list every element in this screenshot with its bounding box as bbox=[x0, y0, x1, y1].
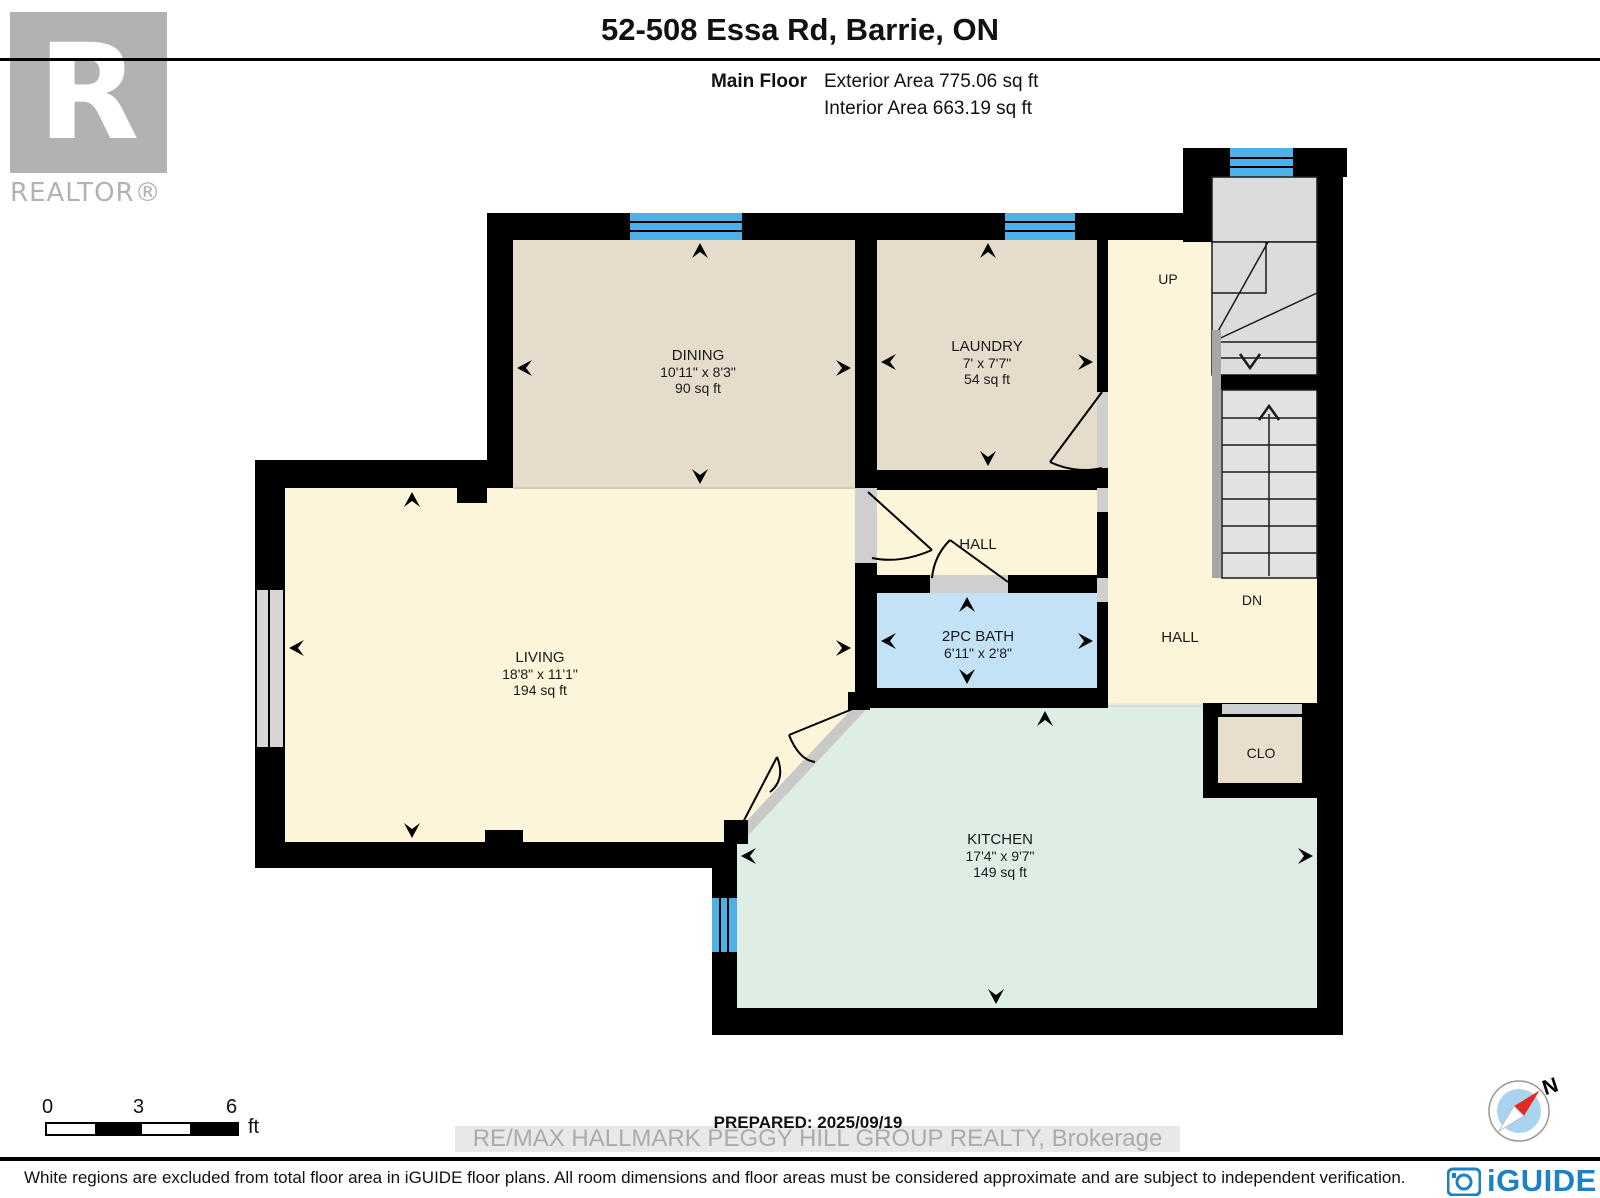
bath-label: 2PC BATH 6'11" x 2'8" bbox=[942, 629, 1014, 661]
living-hall-opening bbox=[855, 488, 877, 563]
living-window bbox=[257, 590, 283, 747]
laundry-window bbox=[1005, 213, 1075, 240]
wall-living-bottom bbox=[255, 842, 723, 868]
wall-stairwell-left bbox=[1183, 148, 1212, 242]
compass-north-label: N bbox=[1540, 1073, 1562, 1100]
closet-label: CLO bbox=[1247, 745, 1276, 761]
wall-laundry-bottom bbox=[855, 470, 1108, 490]
dining-living-boundary bbox=[513, 487, 855, 489]
floor-plan-page: R REALTOR® 52-508 Essa Rd, Barrie, ON Ma… bbox=[0, 0, 1600, 1198]
wall-bath-bottom bbox=[855, 688, 1108, 708]
hall-opening-1 bbox=[1097, 488, 1108, 512]
header-divider bbox=[0, 58, 1600, 61]
realtor-logo-letter: R bbox=[38, 27, 140, 159]
iguide-camera-icon bbox=[1447, 1166, 1481, 1196]
dining-label: DINING 10'11" x 8'3" 90 sq ft bbox=[660, 348, 736, 396]
compass-icon: N bbox=[1489, 1073, 1561, 1141]
scale-tick-6: 6 bbox=[226, 1096, 237, 1119]
kitchen-label: KITCHEN 17'4" x 9'7" 149 sq ft bbox=[966, 832, 1035, 880]
disclaimer-text: White regions are excluded from total fl… bbox=[24, 1168, 1406, 1188]
wall-stub-top bbox=[457, 488, 487, 503]
hall-opening-2 bbox=[1097, 578, 1108, 602]
exterior-area: Exterior Area 775.06 sq ft bbox=[824, 71, 1038, 93]
hall-kitchen-boundary bbox=[1108, 705, 1203, 707]
realtor-logo-text: REALTOR® bbox=[10, 178, 190, 208]
interior-area: Interior Area 663.19 sq ft bbox=[824, 98, 1032, 120]
dining-window bbox=[630, 213, 742, 240]
iguide-logo: iGUIDE bbox=[1447, 1163, 1597, 1198]
realtor-logo: R bbox=[10, 12, 167, 173]
kitchen-window bbox=[712, 898, 737, 952]
wall-kitchen-bottom bbox=[712, 1008, 1343, 1035]
laundry-door-opening bbox=[1097, 392, 1108, 468]
wall-top-main bbox=[487, 213, 1212, 240]
closet-door bbox=[1222, 704, 1302, 716]
laundry-label: LAUNDRY 7' x 7'7" 54 sq ft bbox=[951, 339, 1022, 387]
scale-unit: ft bbox=[248, 1116, 259, 1139]
wall-living-top bbox=[255, 460, 513, 488]
hall-lower-label: HALL bbox=[959, 537, 997, 553]
scale-tick-3: 3 bbox=[133, 1096, 144, 1119]
prepared-date: PREPARED: 2025/09/19 bbox=[714, 1113, 903, 1133]
wall-center-vertical bbox=[855, 213, 877, 708]
floor-label: Main Floor bbox=[637, 71, 807, 93]
bath-door-opening bbox=[930, 575, 1008, 593]
scale-bar bbox=[45, 1122, 239, 1136]
hall-upper-label: HALL bbox=[1161, 630, 1199, 646]
wall-stub-bottom bbox=[485, 830, 523, 842]
living-label: LIVING 18'8" x 11'1" 194 sq ft bbox=[502, 650, 578, 698]
scale-tick-0: 0 bbox=[42, 1096, 53, 1119]
footer-divider bbox=[0, 1157, 1600, 1161]
stairs-up-label: UP bbox=[1158, 271, 1177, 287]
stairs-down-label: DN bbox=[1242, 592, 1262, 608]
wall-right-outer bbox=[1317, 148, 1343, 1035]
wall-hall-left bbox=[1097, 240, 1108, 708]
wall-dining-left bbox=[487, 213, 513, 488]
iguide-logo-text: iGUIDE bbox=[1487, 1163, 1597, 1198]
hall-lower-floor bbox=[877, 490, 1097, 575]
page-title: 52-508 Essa Rd, Barrie, ON bbox=[601, 12, 999, 48]
hall-upper-floor bbox=[1108, 240, 1317, 708]
stairwell-window bbox=[1230, 148, 1293, 177]
